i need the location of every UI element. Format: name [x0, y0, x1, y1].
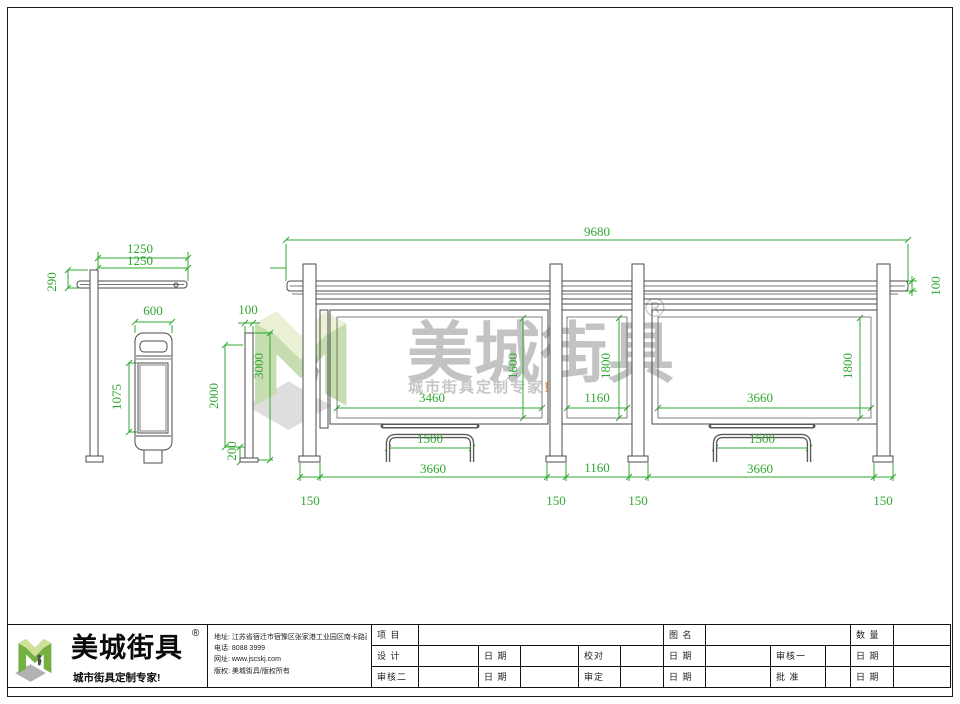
reviewer1-value-cell: [826, 646, 851, 666]
lightbox-side-view: [135, 333, 172, 463]
address-value: 江苏省宿迁市宿豫区张家港工业园区南卡路西侧1号: [232, 634, 367, 641]
phone-value: 8088 3999: [232, 645, 265, 652]
ratifier-value-cell: [826, 667, 851, 687]
company-slogan: 城市街具定制专家!: [73, 670, 161, 685]
drawing-name-value-cell: [706, 625, 851, 645]
ratifier-label: 批 准: [771, 667, 826, 687]
approver-label: 审定: [579, 667, 621, 687]
drawing-canvas: [0, 0, 960, 704]
title-block-row: 项 目 图 名 数 量: [372, 625, 950, 646]
project-value-cell: [419, 625, 664, 645]
copyright-value: 美城街具/版权所有: [232, 668, 290, 675]
company-website: 网址: www.jscskj.com: [214, 654, 367, 665]
date-label: 日 期: [664, 646, 706, 666]
title-block: 美城街具 ® 城市街具定制专家! 地址: 江苏省宿迁市宿豫区张家港工业园区南卡路…: [7, 624, 951, 688]
cad-sheet: 美城街具 ® 城市街具定制专家!: [0, 0, 960, 704]
website-value: www.jscskj.com: [232, 656, 281, 663]
side-view: [77, 270, 187, 462]
drawing-name-label: 图 名: [664, 625, 706, 645]
designer-label: 设 计: [372, 646, 419, 666]
date-value-cell: [894, 667, 950, 687]
company-copyright: 版权: 美城街具/版权所有: [214, 666, 367, 677]
front-view: [287, 264, 908, 462]
title-block-row: 设 计 日 期 校对 日 期 审核一 日 期: [372, 646, 950, 667]
designer-value-cell: [419, 646, 479, 666]
quantity-value-cell: [894, 625, 950, 645]
registered-mark: ®: [192, 628, 199, 639]
company-address: 地址: 江苏省宿迁市宿豫区张家港工业园区南卡路西侧1号: [214, 632, 367, 643]
quantity-label: 数 量: [851, 625, 894, 645]
bench: [383, 426, 477, 462]
date-value-cell: [894, 646, 950, 666]
project-label: 项 目: [372, 625, 419, 645]
reviewer1-label: 审核一: [771, 646, 826, 666]
date-label: 日 期: [851, 646, 894, 666]
website-label: 网址:: [214, 656, 230, 663]
company-phone: 电话: 8088 3999: [214, 643, 367, 654]
company-info-block: 地址: 江苏省宿迁市宿豫区张家港工业园区南卡路西侧1号 电话: 8088 399…: [208, 625, 372, 687]
reviewer2-label: 审核二: [372, 667, 419, 687]
reviewer2-value-cell: [419, 667, 479, 687]
approver-value-cell: [621, 667, 664, 687]
title-block-row: 审核二 日 期 审定 日 期 批 准 日 期: [372, 667, 950, 687]
date-value-cell: [706, 667, 771, 687]
date-value-cell: [521, 646, 579, 666]
checker-label: 校对: [579, 646, 621, 666]
date-label: 日 期: [664, 667, 706, 687]
date-value-cell: [706, 646, 771, 666]
date-value-cell: [521, 667, 579, 687]
checker-value-cell: [621, 646, 664, 666]
bench: [711, 426, 813, 462]
post-detail-view: [240, 333, 258, 462]
company-name: 美城街具: [71, 626, 183, 665]
company-logo-block: 美城街具 ® 城市街具定制专家!: [8, 625, 208, 687]
brand-logo-icon: [14, 628, 69, 683]
date-label: 日 期: [479, 667, 521, 687]
date-label: 日 期: [479, 646, 521, 666]
date-label: 日 期: [851, 667, 894, 687]
address-label: 地址:: [214, 634, 230, 641]
title-block-table: 项 目 图 名 数 量 设 计 日 期 校对 日 期 审核一 日 期: [372, 625, 950, 687]
dimension-lines: [65, 237, 917, 481]
phone-label: 电话:: [214, 645, 230, 652]
copyright-label: 版权:: [214, 668, 230, 675]
